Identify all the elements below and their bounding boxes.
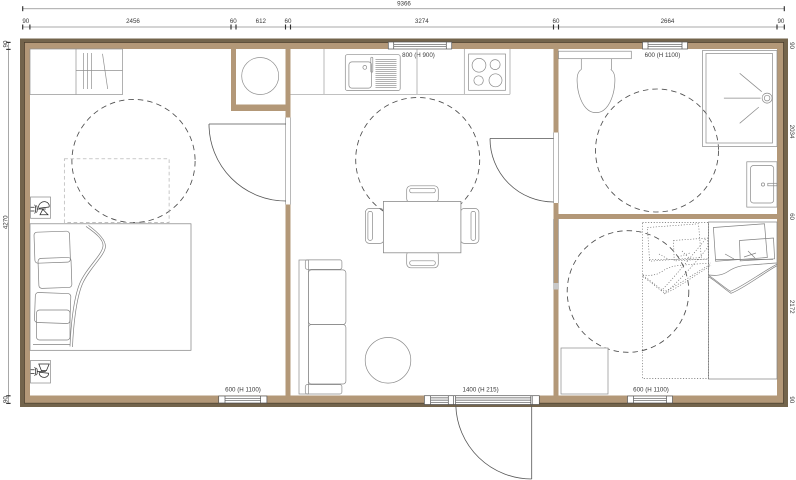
svg-text:3274: 3274 xyxy=(415,18,429,25)
svg-text:60: 60 xyxy=(788,213,795,220)
svg-text:2664: 2664 xyxy=(661,18,675,25)
svg-text:90: 90 xyxy=(788,396,795,403)
svg-text:4270: 4270 xyxy=(3,215,10,229)
svg-text:90: 90 xyxy=(777,18,784,25)
svg-text:90: 90 xyxy=(3,40,10,47)
svg-text:60: 60 xyxy=(553,18,560,25)
svg-text:2034: 2034 xyxy=(788,125,795,139)
svg-text:60: 60 xyxy=(230,18,237,25)
svg-text:612: 612 xyxy=(256,18,267,25)
svg-text:90: 90 xyxy=(3,396,10,403)
svg-text:1400 (H 215): 1400 (H 215) xyxy=(463,386,499,393)
svg-text:60: 60 xyxy=(285,18,292,25)
svg-text:90: 90 xyxy=(788,42,795,49)
svg-text:9366: 9366 xyxy=(397,0,411,7)
svg-text:600 (H 1100): 600 (H 1100) xyxy=(633,386,669,393)
svg-text:800 (H 900): 800 (H 900) xyxy=(402,52,435,59)
svg-text:90: 90 xyxy=(22,18,29,25)
svg-text:2172: 2172 xyxy=(788,300,795,314)
svg-text:2456: 2456 xyxy=(126,18,140,25)
svg-text:600 (H 1100): 600 (H 1100) xyxy=(225,386,261,393)
svg-text:600 (H 1100): 600 (H 1100) xyxy=(645,52,681,59)
